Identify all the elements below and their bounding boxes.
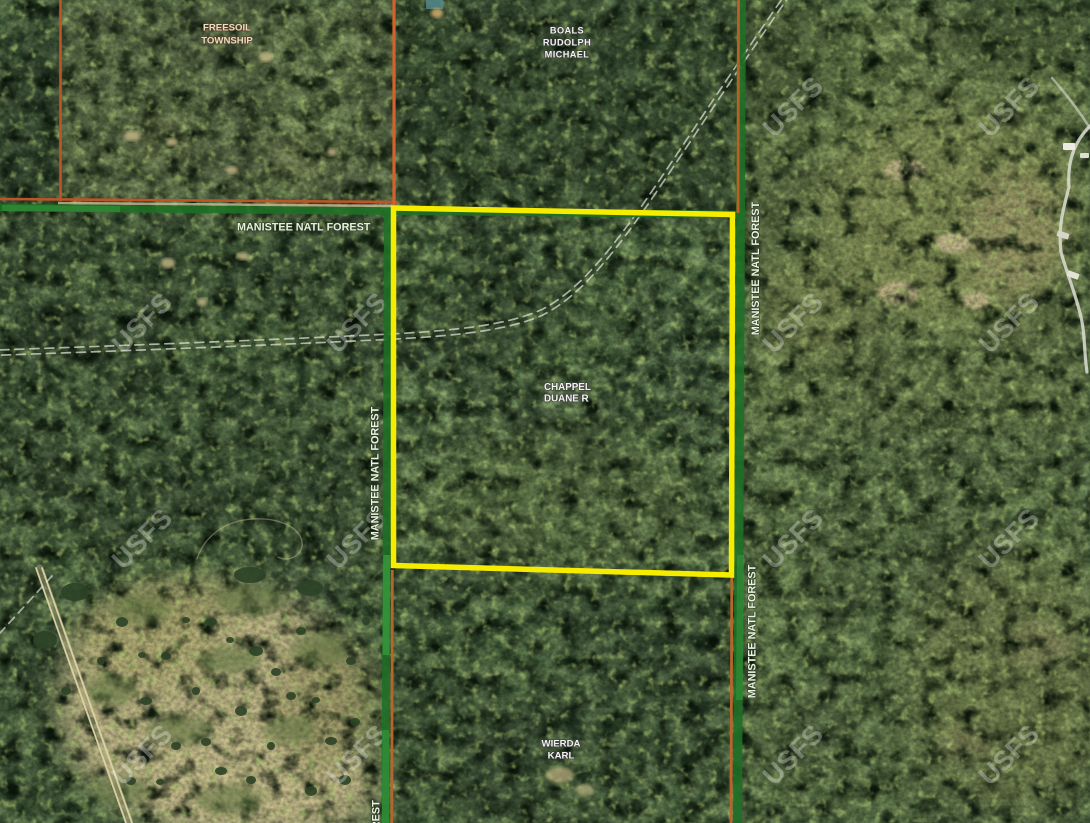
svg-text:CHAPPEL: CHAPPEL: [544, 382, 591, 393]
svg-text:RUDOLPH: RUDOLPH: [543, 38, 591, 48]
svg-text:FREESOIL: FREESOIL: [203, 23, 251, 34]
svg-text:BOALS: BOALS: [550, 26, 584, 36]
svg-text:KARL: KARL: [548, 751, 575, 762]
svg-text:TOWNSHIP: TOWNSHIP: [201, 36, 253, 47]
svg-text:WIERDA: WIERDA: [542, 739, 581, 750]
svg-text:MICHAEL: MICHAEL: [545, 50, 590, 60]
svg-text:MANISTEE NATL FOREST: MANISTEE NATL FOREST: [370, 406, 382, 540]
svg-text:MANISTEE NATL FOREST: MANISTEE NATL FOREST: [747, 564, 759, 698]
svg-text:MANISTEE NATL FOREST: MANISTEE NATL FOREST: [750, 201, 762, 335]
svg-text:MANISTEE NATL FOREST: MANISTEE NATL FOREST: [237, 222, 371, 234]
svg-text:MANISTEE NATL FOREST: MANISTEE NATL FOREST: [371, 800, 383, 823]
svg-text:DUANE R: DUANE R: [544, 394, 589, 405]
